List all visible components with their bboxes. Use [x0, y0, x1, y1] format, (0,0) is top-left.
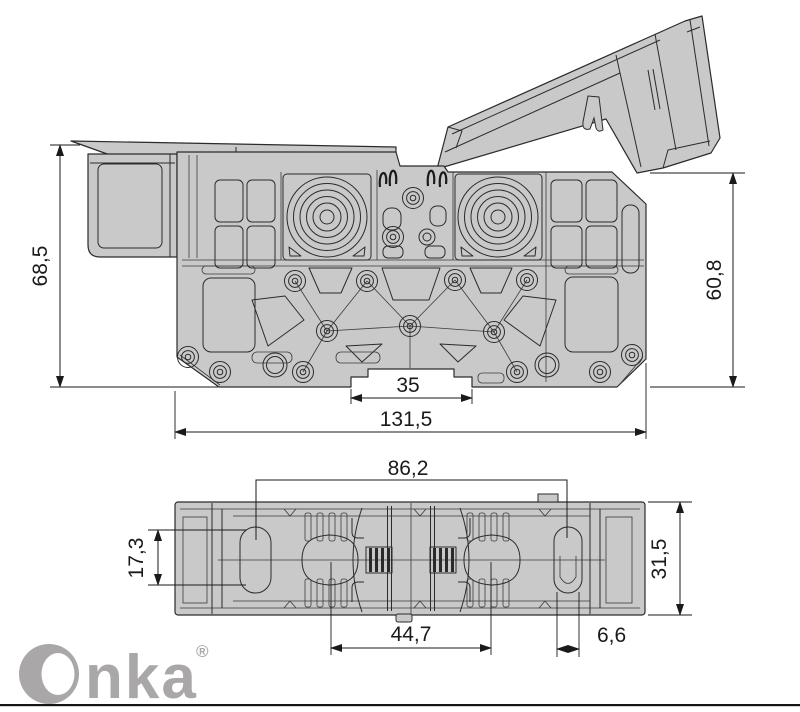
bottom-outline	[175, 502, 645, 615]
side-view: 68,5 60,8 35 131,5	[29, 16, 745, 439]
drawing-canvas: 68,5 60,8 35 131,5	[0, 0, 800, 712]
registered-trademark: ®	[196, 642, 209, 661]
bottom-view: 86,2 17,3 31,5 44,7 6,6	[125, 457, 692, 657]
technical-drawing-page: 68,5 60,8 35 131,5	[0, 0, 800, 712]
dimension-overall-depth: 31,5	[648, 502, 692, 615]
open-cover	[437, 16, 720, 173]
footer-rule	[0, 704, 800, 706]
dim-68-5-label: 68,5	[29, 246, 52, 287]
dim-86-2-label: 86,2	[388, 457, 429, 480]
dim-6-6-label: 6,6	[597, 624, 626, 647]
dim-35-label: 35	[396, 374, 419, 397]
dim-60-8-label: 60,8	[703, 260, 726, 301]
dim-131-5-label: 131,5	[380, 408, 433, 431]
dim-17-3-label: 17,3	[125, 538, 148, 579]
logo-wordmark: nka	[85, 643, 198, 712]
dim-31-5-label: 31,5	[648, 539, 671, 580]
brand-logo: nka ®	[19, 642, 209, 712]
left-flange	[88, 154, 177, 257]
dimension-rail-notch-width: 35	[351, 374, 472, 404]
cover-outline	[437, 16, 720, 173]
bottom-tab	[396, 614, 412, 622]
terminal-body	[71, 141, 646, 387]
logo-o-counter	[42, 653, 75, 695]
dimension-height-right: 60,8	[650, 173, 745, 387]
dim-44-7-label: 44,7	[391, 623, 432, 646]
